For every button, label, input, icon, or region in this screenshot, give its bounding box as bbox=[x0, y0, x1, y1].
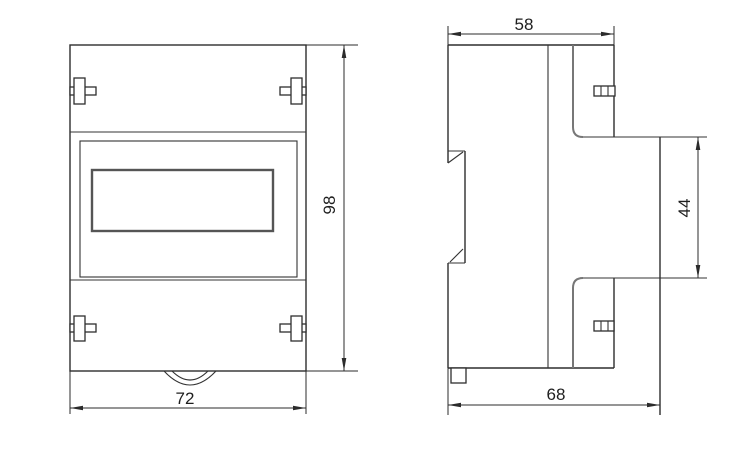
side-view: 58 44 68 bbox=[448, 15, 707, 415]
clip-body bbox=[594, 321, 614, 331]
dim-side-bottom-width: 68 bbox=[448, 368, 660, 415]
clip-top-left bbox=[70, 78, 96, 104]
clip-slider bbox=[74, 78, 85, 104]
clip-slider bbox=[291, 316, 302, 341]
front-view: 98 72 bbox=[70, 45, 358, 414]
dim-front-width: 72 bbox=[70, 371, 306, 414]
seal-arc-outer bbox=[164, 371, 216, 385]
side-din-rail-recess bbox=[448, 151, 465, 263]
cover-edge-lower bbox=[573, 278, 583, 368]
dim-label-front-width: 72 bbox=[176, 389, 195, 408]
clip-bottom-left bbox=[70, 316, 96, 341]
seal-arc-inner bbox=[172, 371, 208, 380]
clip-slider bbox=[291, 78, 302, 104]
dim-label-side-top-width: 58 bbox=[515, 15, 534, 34]
dim-side-panel-height: 44 bbox=[675, 137, 698, 278]
side-bottom-foot bbox=[451, 368, 466, 383]
side-internal-lines bbox=[548, 45, 583, 368]
clip-body bbox=[594, 86, 615, 96]
side-clips bbox=[594, 86, 615, 331]
side-clip-bottom bbox=[594, 321, 614, 331]
dim-label-front-height: 98 bbox=[320, 196, 339, 215]
side-clip-top bbox=[594, 86, 615, 96]
clip-top-right bbox=[280, 78, 306, 104]
front-display-window bbox=[80, 141, 297, 277]
dim-front-height: 98 bbox=[306, 45, 358, 371]
clip-slider bbox=[74, 316, 85, 341]
side-front-panel bbox=[583, 137, 707, 415]
side-profile-outline bbox=[448, 45, 614, 368]
display-lcd bbox=[92, 170, 273, 231]
dim-side-top-width: 58 bbox=[448, 15, 614, 45]
cover-edge-upper bbox=[573, 45, 583, 137]
recess-top-hook bbox=[448, 152, 463, 163]
recess-bottom-hook bbox=[450, 249, 463, 262]
clip-bottom-right bbox=[280, 316, 306, 341]
dim-label-side-panel-height: 44 bbox=[675, 199, 694, 218]
technical-drawing-canvas: 98 72 bbox=[0, 0, 750, 466]
dimension-drawing: 98 72 bbox=[0, 0, 750, 466]
dim-label-side-bottom-width: 68 bbox=[547, 385, 566, 404]
front-bottom-seal-arcs bbox=[164, 371, 216, 385]
